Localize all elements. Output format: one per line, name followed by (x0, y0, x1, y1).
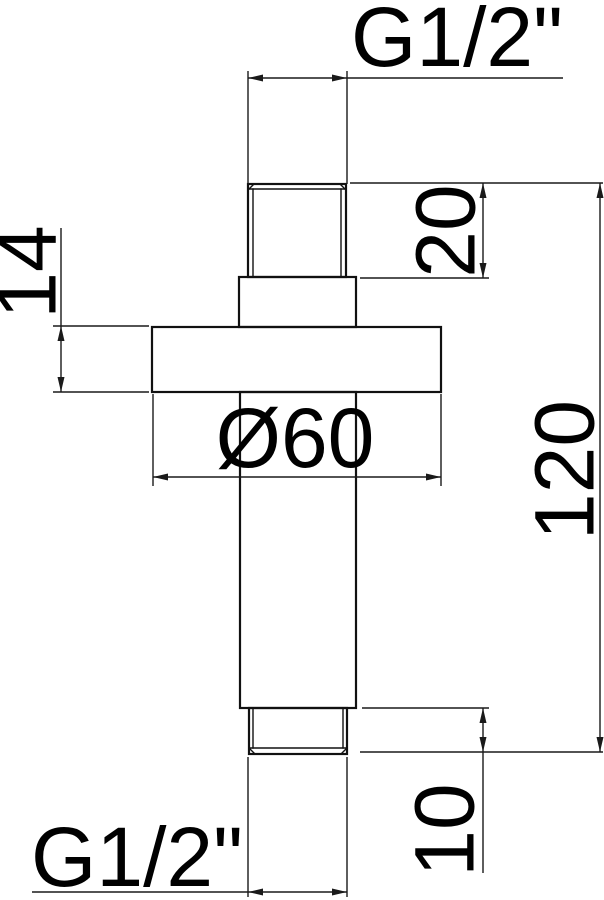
bottom-thread-outline (249, 708, 347, 754)
arrowhead-right (426, 474, 441, 481)
arrowhead-down (480, 737, 487, 752)
dimension-flange-thickness: 14 (0, 225, 149, 392)
collar-outline (239, 277, 356, 327)
flange-thickness-text: 14 (0, 225, 73, 318)
top-thread-outline (248, 184, 346, 277)
arrowhead-left (248, 889, 263, 896)
dimension-top-thread-length: 20 (350, 183, 603, 278)
dimension-bottom-thread-length: 10 (362, 708, 491, 877)
dimension-top-thread-label: G1/2" (248, 0, 563, 184)
bottom-thread-length-text: 10 (397, 783, 491, 876)
flange-outline (152, 327, 441, 392)
arrowhead-right (332, 75, 347, 82)
flange-diameter-text: Ø60 (216, 391, 375, 485)
arrowhead-up (480, 708, 487, 723)
shower-arm-drawing-svg: G1/2" 20 14 Ø60 (0, 0, 604, 900)
arrowhead-left (153, 474, 168, 481)
dimension-bottom-thread-label: G1/2" (31, 757, 347, 900)
top-thread-length-text: 20 (398, 184, 492, 277)
bottom-thread-size-text: G1/2" (31, 810, 243, 900)
arrowhead-up (597, 183, 604, 198)
arrowhead-left (248, 75, 263, 82)
technical-drawing: G1/2" 20 14 Ø60 (0, 0, 604, 900)
arrowhead-down (597, 737, 604, 752)
dimension-flange-diameter: Ø60 (153, 391, 441, 486)
top-thread-size-text: G1/2" (351, 0, 563, 84)
overall-length-text: 120 (517, 400, 604, 540)
arrowhead-down (58, 377, 65, 392)
arrowhead-right (332, 889, 347, 896)
arrowhead-up (58, 326, 65, 341)
